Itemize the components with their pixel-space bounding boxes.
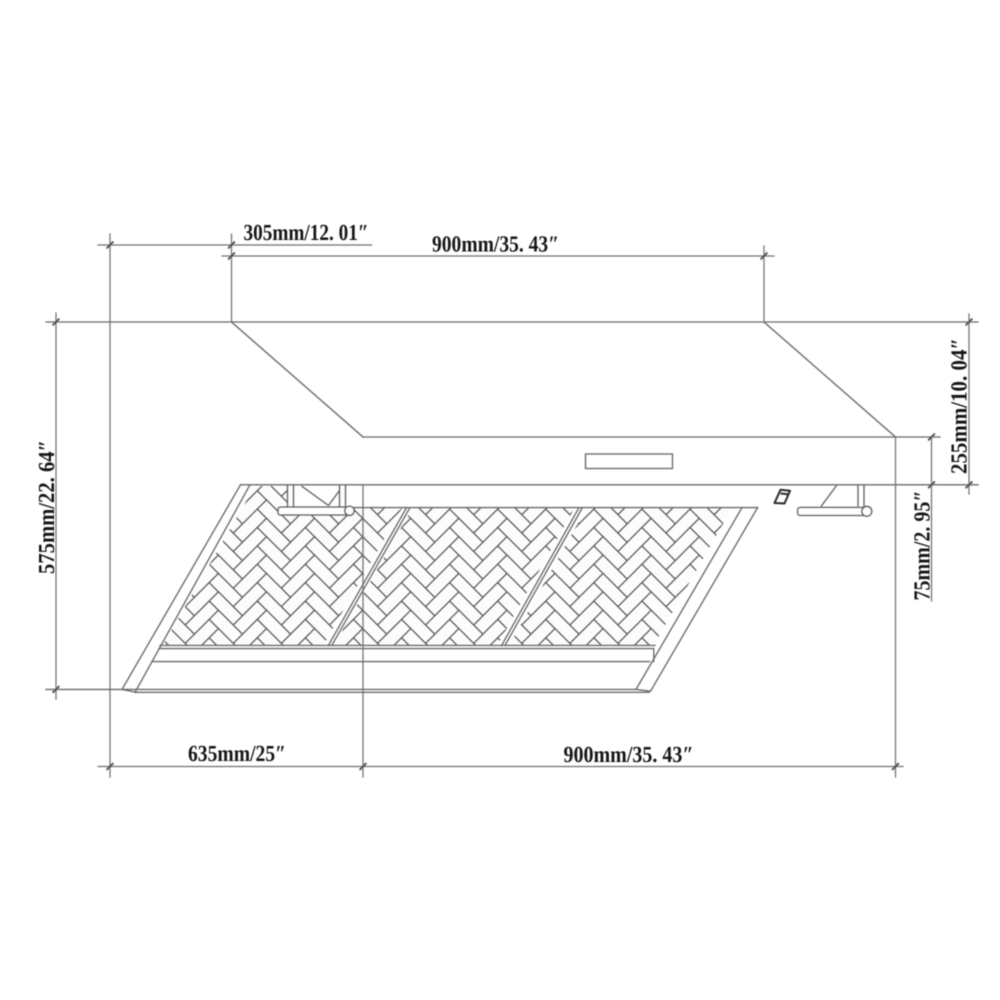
svg-text:900mm/35. 43″: 900mm/35. 43″ xyxy=(564,742,694,767)
svg-text:900mm/35. 43″: 900mm/35. 43″ xyxy=(432,232,559,257)
svg-text:255mm/10. 04″: 255mm/10. 04″ xyxy=(947,338,972,474)
svg-text:305mm/12. 01″: 305mm/12. 01″ xyxy=(244,220,369,245)
svg-text:75mm/2. 95″: 75mm/2. 95″ xyxy=(910,491,935,601)
svg-text:635mm/25″: 635mm/25″ xyxy=(188,741,286,766)
svg-text:575mm/22. 64″: 575mm/22. 64″ xyxy=(34,440,59,574)
